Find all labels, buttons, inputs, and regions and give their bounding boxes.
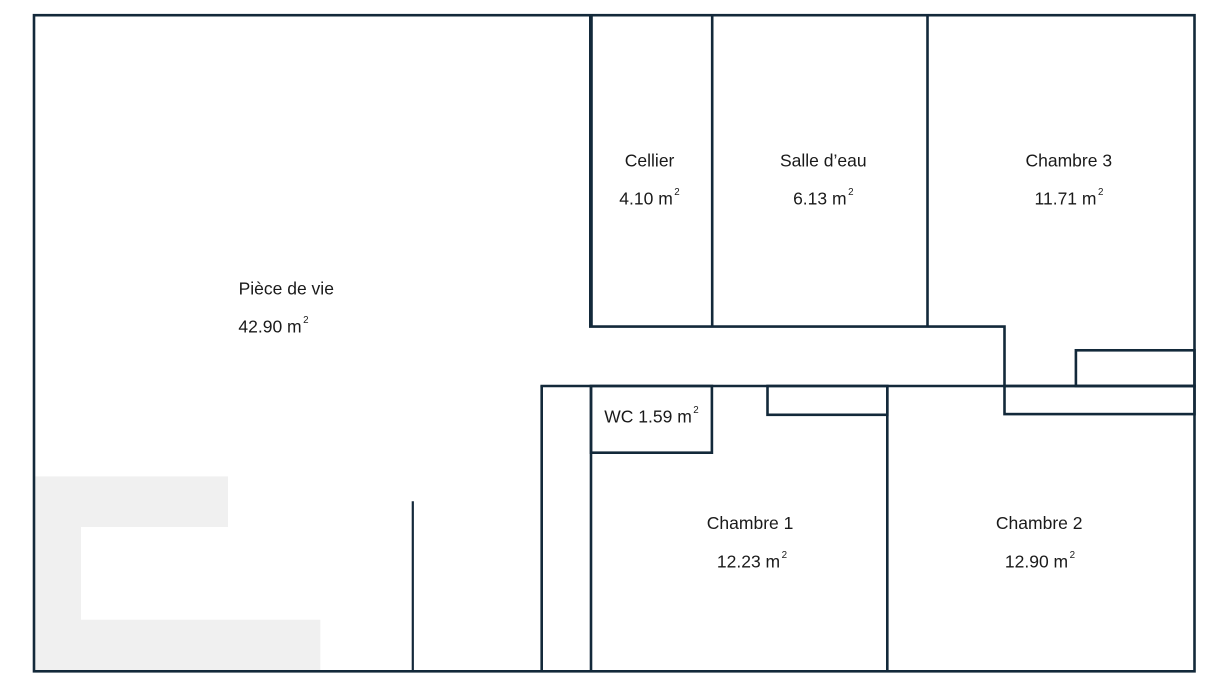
svg-text:11.71 m2: 11.71 m2	[1035, 187, 1104, 209]
svg-text:42.90 m2: 42.90 m2	[238, 315, 308, 337]
svg-text:Chambre 2: Chambre 2	[996, 513, 1083, 533]
svg-text:Cellier: Cellier	[625, 150, 675, 170]
svg-text:6.13 m2: 6.13 m2	[793, 187, 853, 209]
svg-text:Pièce de vie: Pièce de vie	[239, 279, 334, 299]
svg-text:Salle d’eau: Salle d’eau	[780, 150, 867, 170]
svg-text:12.23 m2: 12.23 m2	[717, 550, 787, 572]
svg-text:Chambre 1: Chambre 1	[707, 513, 794, 533]
svg-text:WC 1.59 m2: WC 1.59 m2	[604, 405, 698, 427]
svg-text:12.90 m2: 12.90 m2	[1005, 550, 1075, 572]
svg-text:Chambre 3: Chambre 3	[1026, 150, 1113, 170]
svg-text:4.10 m2: 4.10 m2	[619, 187, 679, 209]
